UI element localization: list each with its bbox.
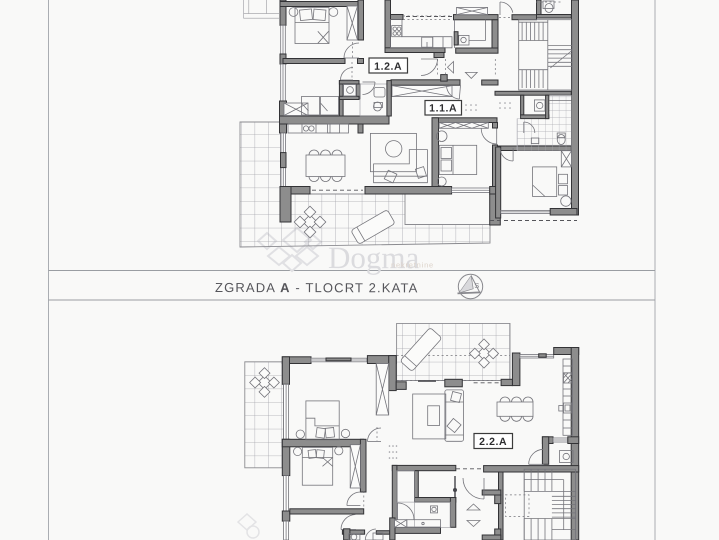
svg-text:ZGRADA A - TLOCRT 2.KATA: ZGRADA A - TLOCRT 2.KATA — [215, 280, 418, 295]
svg-text:1.2.A: 1.2.A — [374, 61, 402, 73]
svg-text:2.2.A: 2.2.A — [479, 436, 507, 448]
svg-text:S: S — [474, 281, 479, 290]
svg-text:nekretnine: nekretnine — [391, 261, 434, 270]
svg-text:1.1.A: 1.1.A — [429, 102, 457, 114]
